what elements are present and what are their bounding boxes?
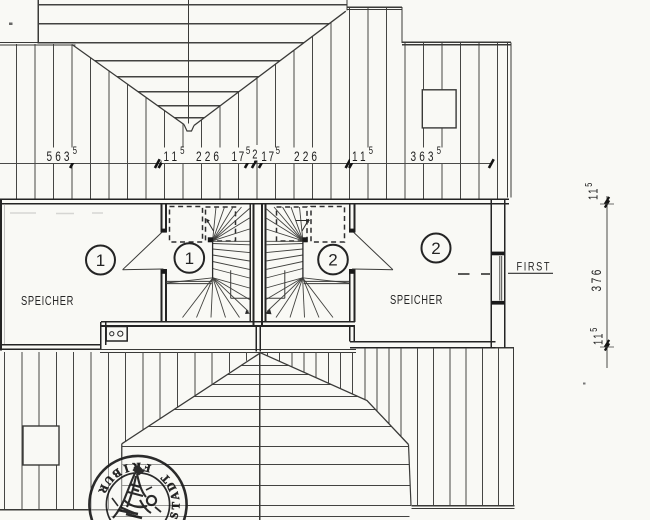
svg-text:T: T [170, 501, 182, 509]
svg-text:5635: 5635 [47, 145, 77, 165]
svg-text:376: 376 [588, 267, 604, 291]
svg-text:SPEICHER: SPEICHER [390, 294, 443, 308]
svg-text:2: 2 [431, 239, 440, 258]
svg-text:115: 115 [583, 181, 601, 200]
svg-text:SPEICHER: SPEICHER [21, 295, 74, 309]
svg-text:1: 1 [96, 251, 105, 270]
svg-text:2: 2 [252, 148, 257, 162]
svg-text:1: 1 [185, 249, 194, 268]
svg-text:FIRST: FIRST [517, 262, 552, 274]
svg-text:226: 226 [196, 148, 222, 164]
svg-text:2: 2 [328, 251, 337, 270]
svg-text:3635: 3635 [411, 145, 441, 165]
svg-text:226: 226 [294, 148, 320, 164]
